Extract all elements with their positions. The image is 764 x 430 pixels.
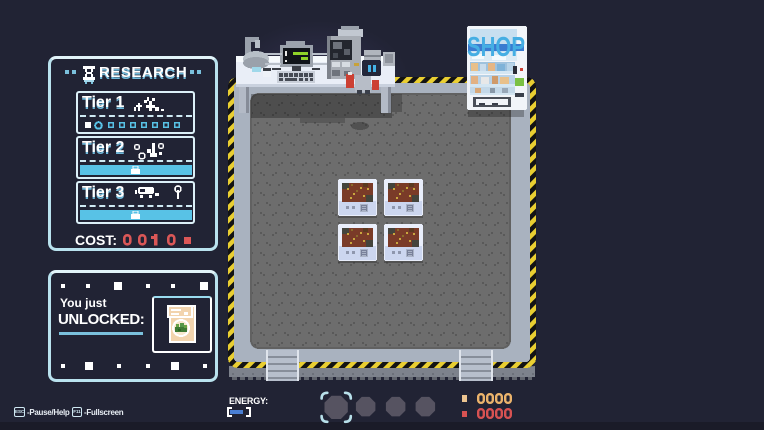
svg-text:SHOP: SHOP — [467, 31, 525, 62]
